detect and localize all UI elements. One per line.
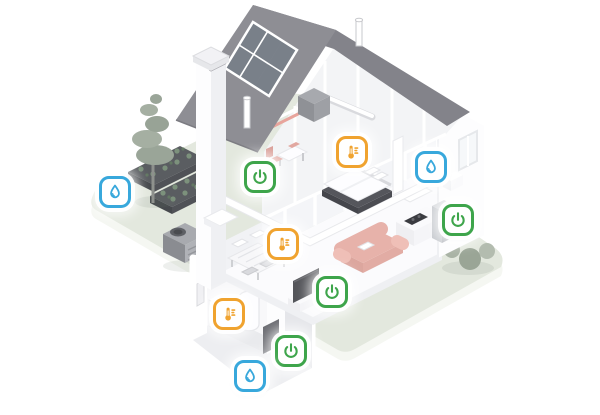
badge-bedroom-thermostat[interactable] <box>336 136 368 168</box>
chimney <box>193 47 229 290</box>
roof-vent-pipe <box>243 96 250 128</box>
badge-garden-irrigation-water[interactable] <box>99 176 131 208</box>
power-icon <box>251 168 269 186</box>
water-drop-icon <box>241 367 259 385</box>
badge-bedroom-power[interactable] <box>244 161 276 193</box>
badge-bathroom-water[interactable] <box>415 151 447 183</box>
roof-vent-pipe-2 <box>355 18 362 46</box>
power-icon <box>449 211 467 229</box>
power-icon <box>323 283 341 301</box>
thermometer-icon <box>343 143 361 161</box>
badge-kitchen-power[interactable] <box>442 204 474 236</box>
badge-basement-power[interactable] <box>275 335 307 367</box>
badge-living-room-power[interactable] <box>316 276 348 308</box>
smart-home-scene <box>0 0 600 415</box>
water-drop-icon <box>422 158 440 176</box>
thermometer-icon <box>274 235 292 253</box>
badge-dining-thermostat[interactable] <box>267 228 299 260</box>
badge-basement-water[interactable] <box>234 360 266 392</box>
water-drop-icon <box>106 183 124 201</box>
power-icon <box>282 342 300 360</box>
thermometer-icon <box>220 305 238 323</box>
badge-basement-thermostat[interactable] <box>213 298 245 330</box>
